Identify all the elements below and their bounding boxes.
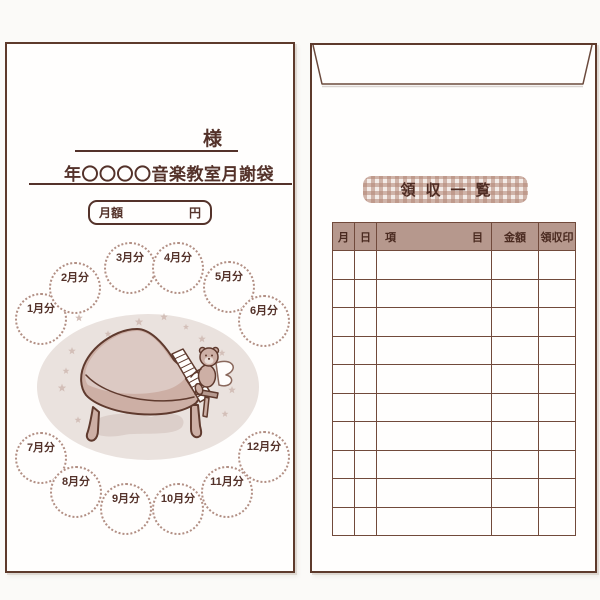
honorific-label: 様 xyxy=(203,129,222,150)
front-title-underline xyxy=(29,183,292,185)
receipt-cell xyxy=(539,450,576,479)
piano-bear-illustration xyxy=(36,313,260,461)
receipt-cell xyxy=(355,251,377,280)
receipt-row xyxy=(333,507,576,536)
month-circle-10: 10月分 xyxy=(152,483,204,535)
receipt-cell xyxy=(492,365,539,394)
receipt-row xyxy=(333,336,576,365)
receipt-cell xyxy=(377,251,492,280)
receipt-cell xyxy=(333,336,355,365)
month-label: 9月分 xyxy=(112,490,140,506)
month-label: 1月分 xyxy=(27,300,55,316)
receipt-cell xyxy=(355,393,377,422)
receipt-cell xyxy=(377,308,492,337)
month-circle-4: 4月分 xyxy=(152,242,204,294)
month-label: 6月分 xyxy=(250,302,278,318)
month-label: 5月分 xyxy=(215,268,243,284)
amount-label: 月額 xyxy=(99,204,123,221)
month-label: 10月分 xyxy=(161,490,195,506)
receipt-row xyxy=(333,251,576,280)
receipt-cell xyxy=(492,479,539,508)
receipt-cell xyxy=(377,507,492,536)
receipt-cell xyxy=(492,308,539,337)
monthly-amount-box: 月額 円 xyxy=(88,200,212,225)
receipt-cell xyxy=(492,251,539,280)
receipt-table-body xyxy=(333,251,576,536)
receipt-cell xyxy=(333,308,355,337)
receipt-table: 月 日 項 目 金額 領収印 xyxy=(332,222,576,536)
receipt-cell xyxy=(355,479,377,508)
receipt-cell xyxy=(333,422,355,451)
receipt-cell xyxy=(355,450,377,479)
receipt-cell xyxy=(355,507,377,536)
receipt-cell xyxy=(333,507,355,536)
month-circle-12: 12月分 xyxy=(238,431,290,483)
receipt-cell xyxy=(492,450,539,479)
receipt-row xyxy=(333,365,576,394)
receipt-cell xyxy=(539,336,576,365)
front-title: 年〇〇〇〇音楽教室月謝袋 xyxy=(47,160,291,185)
receipt-cell xyxy=(539,279,576,308)
receipt-cell xyxy=(492,279,539,308)
receipt-cell xyxy=(377,336,492,365)
month-label: 2月分 xyxy=(61,269,89,285)
receipt-list-title: 領収一覧 xyxy=(390,179,500,200)
envelope-front: 様 年〇〇〇〇音楽教室月謝袋 月額 円 xyxy=(5,42,295,573)
receipt-cell xyxy=(539,507,576,536)
receipt-cell xyxy=(492,336,539,365)
receipt-row xyxy=(333,450,576,479)
month-label: 12月分 xyxy=(247,438,281,454)
receipt-cell xyxy=(539,251,576,280)
month-label: 8月分 xyxy=(62,473,90,489)
receipt-cell xyxy=(333,365,355,394)
receipt-list-title-badge: 領収一覧 xyxy=(363,176,528,203)
month-label: 7月分 xyxy=(27,439,55,455)
month-circle-8: 8月分 xyxy=(50,466,102,518)
col-header-amount: 金額 xyxy=(492,223,539,251)
month-label: 4月分 xyxy=(164,249,192,265)
receipt-row xyxy=(333,393,576,422)
receipt-row xyxy=(333,279,576,308)
receipt-cell xyxy=(377,393,492,422)
receipt-cell xyxy=(333,450,355,479)
receipt-cell xyxy=(539,365,576,394)
receipt-cell xyxy=(333,393,355,422)
name-underline: 様 xyxy=(75,128,238,152)
month-circle-9: 9月分 xyxy=(100,483,152,535)
receipt-row xyxy=(333,422,576,451)
receipt-cell xyxy=(492,507,539,536)
receipt-cell xyxy=(492,393,539,422)
receipt-cell xyxy=(539,393,576,422)
receipt-cell xyxy=(355,279,377,308)
envelope-back: 領収一覧 月 日 項 目 金額 領収印 xyxy=(310,43,597,573)
month-label: 3月分 xyxy=(116,249,144,265)
month-circle-6: 6月分 xyxy=(238,295,290,347)
receipt-cell xyxy=(377,422,492,451)
receipt-table-header-row: 月 日 項 目 金額 領収印 xyxy=(333,223,576,251)
receipt-cell xyxy=(355,336,377,365)
col-header-item: 項 目 xyxy=(377,223,492,251)
receipt-cell xyxy=(539,479,576,508)
receipt-cell xyxy=(377,450,492,479)
receipt-cell xyxy=(355,308,377,337)
receipt-cell xyxy=(377,279,492,308)
currency-label: 円 xyxy=(189,204,201,221)
receipt-cell xyxy=(333,279,355,308)
receipt-cell xyxy=(355,365,377,394)
col-header-month: 月 xyxy=(333,223,355,251)
month-label: 11月分 xyxy=(210,473,244,489)
receipt-cell xyxy=(377,479,492,508)
receipt-row xyxy=(333,479,576,508)
item-label-end: 目 xyxy=(472,229,483,245)
col-header-day: 日 xyxy=(355,223,377,251)
envelope-flap xyxy=(312,45,595,91)
receipt-cell xyxy=(539,422,576,451)
receipt-cell xyxy=(377,365,492,394)
receipt-row xyxy=(333,308,576,337)
receipt-cell xyxy=(355,422,377,451)
receipt-cell xyxy=(539,308,576,337)
month-circle-3: 3月分 xyxy=(104,242,156,294)
item-label-start: 項 xyxy=(385,229,396,245)
page-background: 様 年〇〇〇〇音楽教室月謝袋 月額 円 xyxy=(0,0,600,600)
receipt-cell xyxy=(333,479,355,508)
receipt-cell xyxy=(492,422,539,451)
month-circle-2: 2月分 xyxy=(49,262,101,314)
col-header-stamp: 領収印 xyxy=(539,223,576,251)
receipt-cell xyxy=(333,251,355,280)
